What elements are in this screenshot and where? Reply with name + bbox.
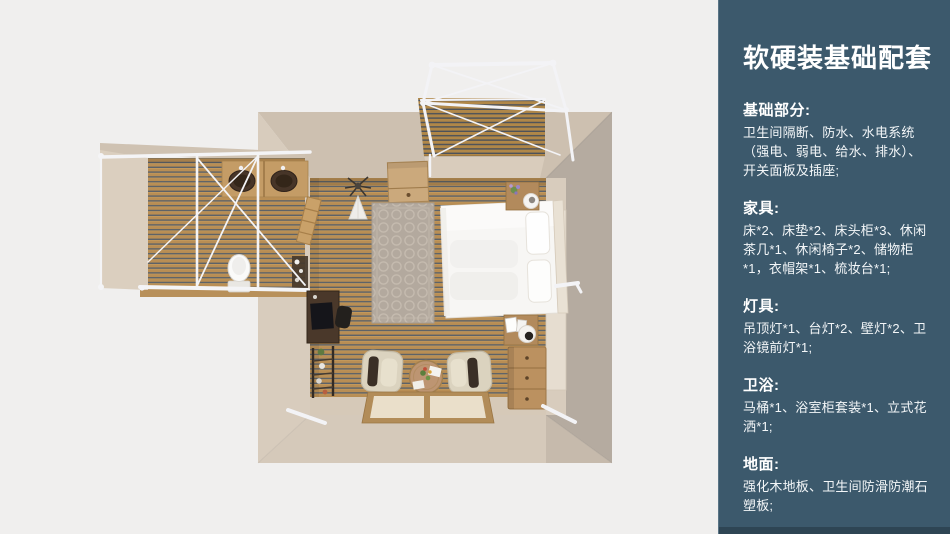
double-bed <box>441 200 568 318</box>
section-heading: 地面: <box>743 453 934 474</box>
toilet <box>228 255 250 293</box>
sidebar-title: 软硬装基础配套 <box>743 38 934 75</box>
section-basics: 基础部分: 卫生间隔断、防水、水电系统（强电、弱电、给水、排水）、开关面板及插座… <box>743 99 934 180</box>
bathroom-annex <box>98 143 321 297</box>
floorplan-render <box>0 0 718 534</box>
round-tea-table <box>410 361 443 394</box>
dresser <box>508 347 546 409</box>
section-furniture: 家具: 床*2、床垫*2、床头柜*3、休闲茶几*1、休闲椅子*2、储物柜*1，衣… <box>743 197 934 278</box>
tatami-mats <box>362 392 494 423</box>
section-lighting: 灯具: 吊顶灯*1、台灯*2、壁灯*2、卫浴镜前灯*1; <box>743 295 934 357</box>
section-heading: 灯具: <box>743 295 934 316</box>
section-heading: 家具: <box>743 197 934 218</box>
nightstand-north <box>506 182 539 210</box>
armchair-right <box>447 351 493 395</box>
nightstand-south <box>504 315 538 345</box>
section-bathroom: 卫浴: 马桶*1、浴室柜套装*1、立式花洒*1; <box>743 374 934 436</box>
faucet-right-icon <box>281 166 285 170</box>
table-lamp-south <box>519 326 536 343</box>
section-body: 马桶*1、浴室柜套装*1、立式花洒*1; <box>743 398 934 436</box>
section-flooring: 地面: 强化木地板、卫生间防滑防潮石塑板; <box>743 453 934 515</box>
section-heading: 卫浴: <box>743 374 934 395</box>
armchair-left <box>361 350 404 394</box>
section-body: 卫生间隔断、防水、水电系统（强电、弱电、给水、排水）、开关面板及插座; <box>743 123 934 180</box>
table-lamp-north <box>524 194 539 209</box>
spec-sidebar: 软硬装基础配套 基础部分: 卫生间隔断、防水、水电系统（强电、弱电、给水、排水）… <box>718 0 950 534</box>
storage-cabinet <box>387 161 428 202</box>
section-body: 床*2、床垫*2、床头柜*3、休闲茶几*1、休闲椅子*2、储物柜*1，衣帽架*1… <box>743 221 934 278</box>
section-body: 强化木地板、卫生间防滑防潮石塑板; <box>743 477 934 515</box>
area-rug <box>372 203 434 323</box>
faucet-left-icon <box>239 166 243 170</box>
section-heading: 基础部分: <box>743 99 934 120</box>
slide-canvas: 软硬装基础配套 基础部分: 卫生间隔断、防水、水电系统（强电、弱电、给水、排水）… <box>0 0 950 534</box>
section-body: 吊顶灯*1、台灯*2、壁灯*2、卫浴镜前灯*1; <box>743 319 934 357</box>
